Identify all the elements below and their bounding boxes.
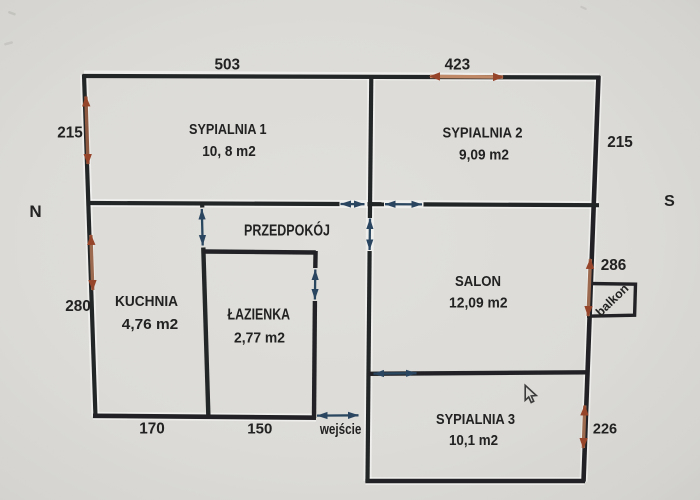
svg-text:9,09 m2: 9,09 m2 <box>459 148 509 164</box>
svg-text:286: 286 <box>601 257 627 274</box>
svg-text:SYPIALNIA 3: SYPIALNIA 3 <box>436 411 515 428</box>
svg-text:S: S <box>664 193 675 210</box>
svg-text:503: 503 <box>215 57 241 74</box>
svg-text:170: 170 <box>139 421 165 438</box>
svg-text:SALON: SALON <box>455 273 501 290</box>
svg-text:423: 423 <box>445 57 471 74</box>
svg-text:12,09 m2: 12,09 m2 <box>449 296 508 312</box>
svg-text:4,76 m2: 4,76 m2 <box>122 317 179 333</box>
svg-text:N: N <box>29 202 41 221</box>
svg-text:wejście: wejście <box>319 422 361 438</box>
svg-text:PRZEDPOKÓJ: PRZEDPOKÓJ <box>244 221 330 240</box>
svg-text:KUCHNIA: KUCHNIA <box>115 293 178 310</box>
svg-text:215: 215 <box>607 134 633 151</box>
svg-text:280: 280 <box>65 298 91 315</box>
svg-text:215: 215 <box>57 125 83 142</box>
svg-text:226: 226 <box>593 422 617 438</box>
svg-text:SYPIALNIA 2: SYPIALNIA 2 <box>443 125 523 142</box>
svg-text:150: 150 <box>247 421 272 438</box>
svg-text:SYPIALNIA 1: SYPIALNIA 1 <box>189 121 267 138</box>
svg-text:10,1 m2: 10,1 m2 <box>449 433 498 449</box>
svg-text:2,77 m2: 2,77 m2 <box>234 331 285 347</box>
svg-text:10, 8 m2: 10, 8 m2 <box>202 144 256 160</box>
svg-text:ŁAZIENKA: ŁAZIENKA <box>228 307 291 324</box>
